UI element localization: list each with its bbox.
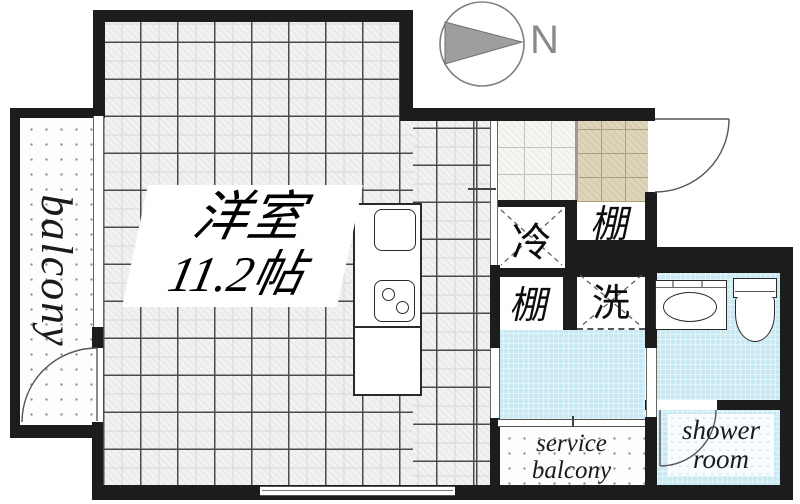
floorplan: N 洋室 11.2帖 冷 棚 棚 洗 balcony service balco… [0, 0, 800, 504]
entrance-genkan-floor [577, 121, 650, 202]
balcony-door-opening [93, 348, 103, 422]
shower-room-label: shower room [668, 414, 774, 476]
counter-divider [353, 326, 422, 328]
wall [645, 417, 657, 487]
shelf-lower-label: 棚 [494, 275, 568, 328]
stove-burner [382, 288, 395, 301]
wall [92, 327, 103, 348]
main-room-floor-extension [413, 121, 490, 487]
wall [780, 273, 793, 500]
kitchen-hall-floor [497, 121, 577, 202]
shelf-upper-label: 棚 [573, 200, 653, 240]
entrance-door-arc [655, 119, 729, 192]
toilet-tank [733, 278, 777, 298]
wall [93, 10, 105, 118]
balcony-label: balcony [26, 111, 86, 431]
partition-tick [468, 188, 496, 190]
kitchen-sink [374, 209, 416, 251]
wall [93, 10, 413, 22]
vanity-edge-line [656, 287, 726, 288]
south-window [260, 486, 455, 496]
washroom-window [490, 348, 500, 418]
compass-north-label: N [530, 18, 559, 63]
entrance-door-opening [648, 121, 657, 192]
main-room-size: 11.2帖 [163, 246, 309, 303]
washroom-corridor-floor [498, 330, 645, 419]
wall [10, 108, 20, 438]
wash-basin [663, 292, 717, 322]
main-room-label: 洋室 11.2帖 [122, 185, 363, 307]
main-room-name: 洋室 [189, 189, 309, 246]
washroom-bathroom-door [646, 348, 657, 417]
balcony-window [93, 116, 104, 327]
wall [497, 200, 567, 207]
north-arrow-icon [445, 22, 522, 64]
wall [400, 10, 413, 121]
compass-circle [440, 2, 524, 86]
washer-label: 洗 [577, 272, 645, 326]
slider-tick [572, 416, 574, 427]
stove-burner [396, 301, 409, 314]
genkan-step-line [575, 121, 577, 202]
shower-door-opening [657, 400, 717, 410]
wall [413, 108, 655, 121]
south-window-line [262, 490, 453, 491]
toilet-tank-line [735, 291, 775, 292]
room-hall-partition [490, 121, 498, 265]
wall [648, 247, 793, 273]
stove [374, 280, 415, 322]
service-balcony-label: service balcony [498, 430, 645, 484]
refrigerator-label: 冷 [498, 210, 565, 268]
